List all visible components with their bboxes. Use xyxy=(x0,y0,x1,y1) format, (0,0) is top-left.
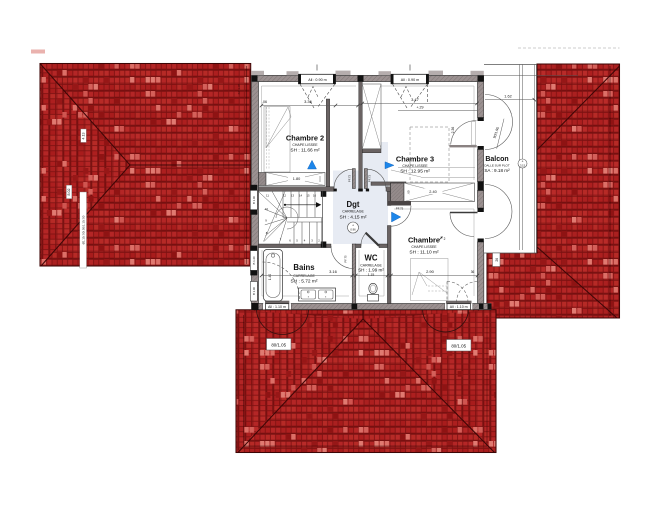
svg-text:80/1.05: 80/1.05 xyxy=(451,344,466,349)
svg-text:+.29: +.29 xyxy=(416,105,423,109)
svg-text:Bains: Bains xyxy=(293,263,315,272)
svg-text:3.47: 3.47 xyxy=(411,97,420,102)
svg-text:PF.75: PF.75 xyxy=(396,206,404,210)
svg-text:10: 10 xyxy=(265,207,269,211)
svg-text:CARRELAGE: CARRELAGE xyxy=(342,210,364,214)
svg-text:All : 0.90 m: All : 0.90 m xyxy=(308,78,326,82)
svg-text:1.15: 1.15 xyxy=(368,273,375,277)
svg-text:0.96: 0.96 xyxy=(350,228,356,232)
svg-text:B 1.00: B 1.00 xyxy=(252,196,256,205)
svg-text:PF.75: PF.75 xyxy=(344,255,348,263)
svg-text:DALLE SUR PLOT: DALLE SUR PLOT xyxy=(484,164,510,168)
svg-text:SH : 5.72 m²: SH : 5.72 m² xyxy=(291,279,318,285)
svg-text:SH : 11.66 m²: SH : 11.66 m² xyxy=(290,147,320,153)
svg-text:26: 26 xyxy=(495,258,499,262)
svg-text:2.90: 2.90 xyxy=(426,269,435,274)
svg-text:.60: .60 xyxy=(407,190,411,195)
svg-text:Chambre 3: Chambre 3 xyxy=(396,155,434,164)
svg-text:8.02: 8.02 xyxy=(67,189,71,196)
svg-text:B 1.40: B 1.40 xyxy=(252,256,256,265)
svg-text:All : 1.10 m: All : 1.10 m xyxy=(450,305,468,309)
svg-text:3.16: 3.16 xyxy=(329,269,338,274)
svg-text:2.40: 2.40 xyxy=(429,190,436,194)
svg-text:B 1.00: B 1.00 xyxy=(252,287,256,296)
svg-text:CHAPE LISSEE: CHAPE LISSEE xyxy=(292,143,318,147)
svg-text:2: 2 xyxy=(444,237,446,241)
svg-text:3.36: 3.36 xyxy=(304,99,313,104)
svg-text:Ø1.15/.50/.50/1.15/.50: Ø1.15/.50/.50/1.15/.50 xyxy=(81,215,85,244)
svg-text:4.13: 4.13 xyxy=(82,133,86,140)
svg-text:SH : 11.10 m²: SH : 11.10 m² xyxy=(409,250,439,256)
svg-text:BP 1.05: BP 1.05 xyxy=(237,83,241,94)
svg-text:2.36: 2.36 xyxy=(451,127,455,134)
svg-text:SA : 9.18 m²: SA : 9.18 m² xyxy=(484,168,510,173)
svg-text:.06: .06 xyxy=(262,100,267,104)
svg-text:All : 1.10 m: All : 1.10 m xyxy=(268,305,286,309)
svg-text:CHAPE LISSEE: CHAPE LISSEE xyxy=(402,164,428,168)
svg-text:WC: WC xyxy=(365,254,378,263)
svg-text:+: + xyxy=(352,223,354,227)
svg-text:12: 12 xyxy=(283,194,287,198)
svg-text:+: + xyxy=(522,160,524,164)
svg-text:1.40: 1.40 xyxy=(268,274,272,280)
svg-text:80/1.05: 80/1.05 xyxy=(271,343,286,348)
svg-text:CHAPE LISSEE: CHAPE LISSEE xyxy=(411,245,437,249)
svg-text:PF.73: PF.73 xyxy=(368,174,372,182)
svg-text:All : 0.90 m: All : 0.90 m xyxy=(401,78,419,82)
svg-text:36: 36 xyxy=(471,270,475,274)
svg-text:16: 16 xyxy=(313,194,317,198)
svg-text:3.15: 3.15 xyxy=(520,164,526,168)
svg-text:13: 13 xyxy=(291,194,295,198)
svg-text:Balcon: Balcon xyxy=(485,156,508,163)
svg-text:SH : 4.15 m²: SH : 4.15 m² xyxy=(340,214,367,220)
svg-text:15: 15 xyxy=(306,194,310,198)
svg-text:Dgt: Dgt xyxy=(347,200,360,209)
svg-text:1.80: 1.80 xyxy=(293,177,300,181)
svg-text:14: 14 xyxy=(299,194,303,198)
svg-text:11: 11 xyxy=(266,194,269,198)
svg-text:1.62: 1.62 xyxy=(504,94,511,98)
svg-text:Chambre: Chambre xyxy=(408,236,440,245)
svg-text:Chambre 2: Chambre 2 xyxy=(286,134,324,143)
svg-text:CARRELAGE: CARRELAGE xyxy=(293,274,315,278)
svg-text:SH : 1.99 m²: SH : 1.99 m² xyxy=(358,267,384,272)
svg-text:PF.73: PF.73 xyxy=(348,174,352,182)
